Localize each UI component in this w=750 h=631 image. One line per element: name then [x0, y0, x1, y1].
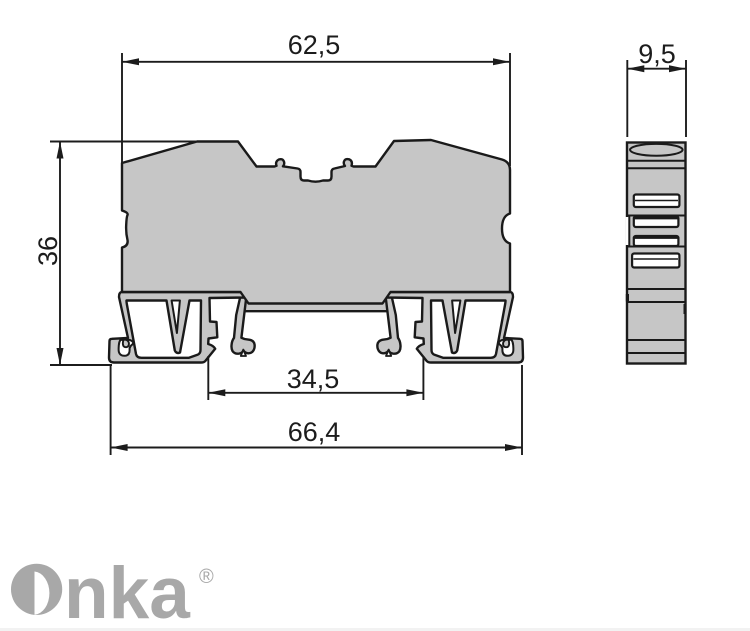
svg-text:36: 36 [33, 236, 63, 266]
svg-text:66,4: 66,4 [288, 417, 341, 447]
svg-text:34,5: 34,5 [287, 364, 340, 394]
svg-text:®: ® [199, 566, 214, 588]
svg-text:9,5: 9,5 [638, 39, 676, 69]
svg-text:62,5: 62,5 [288, 30, 341, 60]
svg-text:nka: nka [64, 553, 191, 631]
